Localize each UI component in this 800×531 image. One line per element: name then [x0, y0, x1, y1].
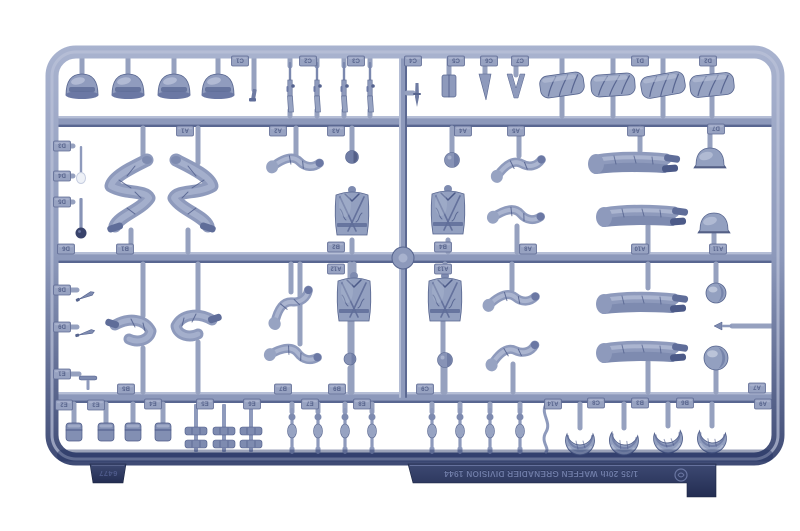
part-wiggle — [544, 404, 548, 452]
svg-text:C7: C7 — [516, 57, 524, 63]
part-ttool — [79, 376, 97, 390]
part-label-tag: D9 — [54, 322, 71, 332]
svg-text:B9: B9 — [333, 385, 341, 391]
svg-text:C8: C8 — [592, 399, 600, 405]
part-label-tag: C7 — [512, 56, 529, 66]
part-label-tag: C1 — [232, 56, 249, 66]
part-arrow — [714, 322, 732, 330]
part-label-tag: D6 — [58, 244, 75, 254]
part-label-tag: C2 — [300, 56, 317, 66]
part-ball — [704, 346, 728, 370]
part-label-tag: A11 — [710, 244, 727, 254]
part-label-tag: E1 — [54, 369, 71, 379]
part-pouch — [155, 423, 171, 441]
part-label-tag: A1 — [177, 126, 194, 136]
part-label-tag: A6 — [628, 126, 645, 136]
part-spade — [77, 146, 86, 184]
svg-text:E7: E7 — [306, 400, 314, 406]
part-dbar — [240, 404, 262, 452]
part-rolledcap — [539, 71, 586, 99]
part-rod — [341, 408, 350, 454]
part-torso — [428, 272, 462, 321]
svg-text:D8: D8 — [58, 286, 66, 292]
svg-text:A3: A3 — [332, 127, 340, 133]
part-label-tag: A10 — [632, 244, 649, 254]
part-rolledcap — [639, 70, 686, 99]
svg-text:A4: A4 — [459, 127, 467, 133]
part-arm — [489, 155, 547, 183]
part-label-tag: A12 — [328, 264, 345, 274]
svg-text:A14: A14 — [547, 400, 559, 406]
part-label-tag: E2 — [56, 400, 73, 410]
part-rifle — [341, 62, 349, 112]
part-label-tag: B7 — [275, 384, 292, 394]
svg-text:D3: D3 — [58, 142, 66, 148]
svg-text:C3: C3 — [352, 57, 360, 63]
part-rifle — [314, 62, 322, 112]
svg-text:D4: D4 — [58, 172, 66, 178]
svg-text:E1: E1 — [58, 370, 66, 376]
molded-text-strip: 1/35 20th WAFFEN GRENADIER DIVISION 1944… — [408, 464, 716, 497]
svg-text:E4: E4 — [149, 400, 157, 406]
part-label-tag: B1 — [117, 244, 134, 254]
svg-text:B7: B7 — [279, 385, 287, 391]
part-label-tag: B6 — [677, 398, 694, 408]
part-label-tag: D1 — [632, 56, 649, 66]
part-label-tag: A8 — [520, 244, 537, 254]
part-label-tag: B5 — [118, 384, 135, 394]
part-label-tag: C6 — [481, 56, 498, 66]
part-rod — [288, 408, 297, 454]
svg-text:C4: C4 — [409, 57, 417, 63]
part-legsZ — [171, 156, 217, 233]
svg-text:D1: D1 — [636, 57, 644, 63]
part-label-tag: E6 — [244, 399, 261, 409]
svg-text:A6: A6 — [632, 127, 640, 133]
part-arm — [262, 337, 322, 376]
part-label-tag: A4 — [455, 126, 472, 136]
part-legsH — [596, 294, 688, 314]
svg-text:B2: B2 — [332, 243, 340, 249]
part-rolledcap — [590, 72, 635, 97]
svg-text:D6: D6 — [62, 245, 70, 251]
part-rod — [428, 408, 437, 454]
part-legsK — [176, 313, 223, 336]
svg-text:A9: A9 — [759, 400, 767, 406]
part-label-tag: B4 — [435, 242, 452, 252]
part-rod — [486, 408, 495, 454]
part-blade — [75, 329, 95, 338]
part-legsK — [104, 318, 151, 341]
part-cap — [66, 74, 99, 99]
model-sprue: Light blue-grey injection-molded plastic… — [0, 0, 800, 531]
part-rolledcap — [689, 72, 735, 98]
svg-text:D9: D9 — [58, 323, 66, 329]
part-label-tag: A3 — [328, 126, 345, 136]
svg-text:E2: E2 — [60, 401, 68, 407]
part-label-tag: C5 — [448, 56, 465, 66]
part-torso — [335, 186, 369, 235]
part-label-tag: E5 — [197, 399, 214, 409]
svg-text:A2: A2 — [274, 127, 282, 133]
part-cap — [112, 74, 145, 99]
part-label-tag: D5 — [54, 197, 71, 207]
part-label-tag: A5 — [508, 126, 525, 136]
bottom-rail-shadow — [57, 450, 773, 462]
part-rod — [314, 408, 323, 454]
part-label-tag: E3 — [88, 400, 105, 410]
svg-text:B4: B4 — [439, 243, 447, 249]
svg-text:A5: A5 — [512, 127, 520, 133]
part-label-tag: A13 — [435, 264, 452, 274]
svg-text:A10: A10 — [634, 245, 646, 251]
part-cap — [202, 74, 235, 99]
svg-text:B3: B3 — [636, 399, 644, 405]
svg-text:D2: D2 — [704, 57, 712, 63]
svg-text:A12: A12 — [330, 265, 342, 271]
svg-text:B5: B5 — [122, 385, 130, 391]
part-label-tag: A9 — [755, 399, 772, 409]
part-satchel — [442, 75, 456, 97]
part-legsH — [588, 154, 680, 174]
part-pouch — [125, 423, 141, 441]
part-label-tag: B3 — [632, 398, 649, 408]
part-legsH — [596, 343, 688, 363]
svg-text:B1: B1 — [121, 245, 129, 251]
part-pistol — [249, 89, 257, 102]
part-label-tag: B2 — [328, 242, 345, 252]
part-torso — [431, 185, 465, 234]
part-arm — [265, 150, 324, 182]
part-label-tag: B9 — [329, 384, 346, 394]
sprue-title-emboss: 1/35 20th WAFFEN GRENADIER DIVISION 1944 — [444, 469, 638, 478]
part-rod — [368, 408, 377, 454]
part-label-tag: D4 — [54, 171, 71, 181]
part-dbar — [185, 404, 207, 452]
part-cone — [479, 74, 491, 100]
svg-text:D5: D5 — [58, 198, 66, 204]
svg-text:C6: C6 — [485, 57, 493, 63]
part-rifle — [287, 62, 295, 112]
part-label-tag: A2 — [270, 126, 287, 136]
part-head — [445, 153, 460, 168]
svg-text:C1: C1 — [236, 57, 244, 63]
part-ball — [706, 283, 726, 303]
svg-text:E6: E6 — [248, 400, 256, 406]
part-label-tag: D7 — [708, 124, 725, 134]
part-label-tag: C8 — [588, 398, 605, 408]
part-label-tag: D3 — [54, 141, 71, 151]
part-label-tag: C9 — [417, 384, 434, 394]
part-head — [438, 353, 453, 368]
part-label-tag: E8 — [354, 399, 371, 409]
svg-text:E5: E5 — [201, 400, 209, 406]
part-dbar — [213, 404, 235, 452]
svg-text:C9: C9 — [421, 385, 429, 391]
part-label-tag: C4 — [405, 56, 422, 66]
part-rod — [456, 408, 465, 454]
part-torso — [337, 272, 371, 321]
svg-text:E3: E3 — [92, 401, 100, 407]
part-label-tag: C3 — [348, 56, 365, 66]
kit-number-emboss: 6477 — [99, 469, 118, 478]
svg-text:A1: A1 — [181, 127, 189, 133]
svg-text:B6: B6 — [681, 399, 689, 405]
part-grenade — [76, 198, 87, 239]
part-label-tag: E7 — [302, 399, 319, 409]
part-vee — [507, 74, 525, 98]
part-legsZ — [106, 156, 152, 233]
part-label-tag: A7 — [749, 383, 766, 393]
part-arm — [482, 289, 539, 315]
part-legsH — [596, 207, 688, 227]
part-dagger — [413, 83, 421, 107]
part-helmet — [698, 213, 730, 233]
svg-text:A13: A13 — [437, 265, 449, 271]
part-headdark — [346, 151, 359, 164]
part-label-tag: D2 — [700, 56, 717, 66]
part-label-tag: A14 — [545, 399, 562, 409]
svg-text:C2: C2 — [304, 57, 312, 63]
svg-text:A8: A8 — [524, 245, 532, 251]
svg-text:A7: A7 — [753, 384, 761, 390]
part-label-tag: E4 — [145, 399, 162, 409]
part-helmet — [694, 148, 726, 168]
kit-number-tab: 6477 — [90, 464, 126, 483]
part-rifle — [367, 62, 375, 112]
part-pouch — [98, 423, 114, 441]
part-rod — [516, 408, 525, 454]
part-headstick — [344, 353, 356, 365]
sprue-photo: Light blue-grey injection-molded plastic… — [0, 0, 800, 531]
svg-text:A11: A11 — [712, 245, 723, 251]
svg-text:C5: C5 — [452, 57, 460, 63]
svg-text:E8: E8 — [358, 400, 366, 406]
svg-text:D7: D7 — [712, 125, 720, 131]
part-pouch — [66, 423, 82, 441]
part-label-tag: D8 — [54, 285, 71, 295]
part-cap — [158, 74, 191, 99]
